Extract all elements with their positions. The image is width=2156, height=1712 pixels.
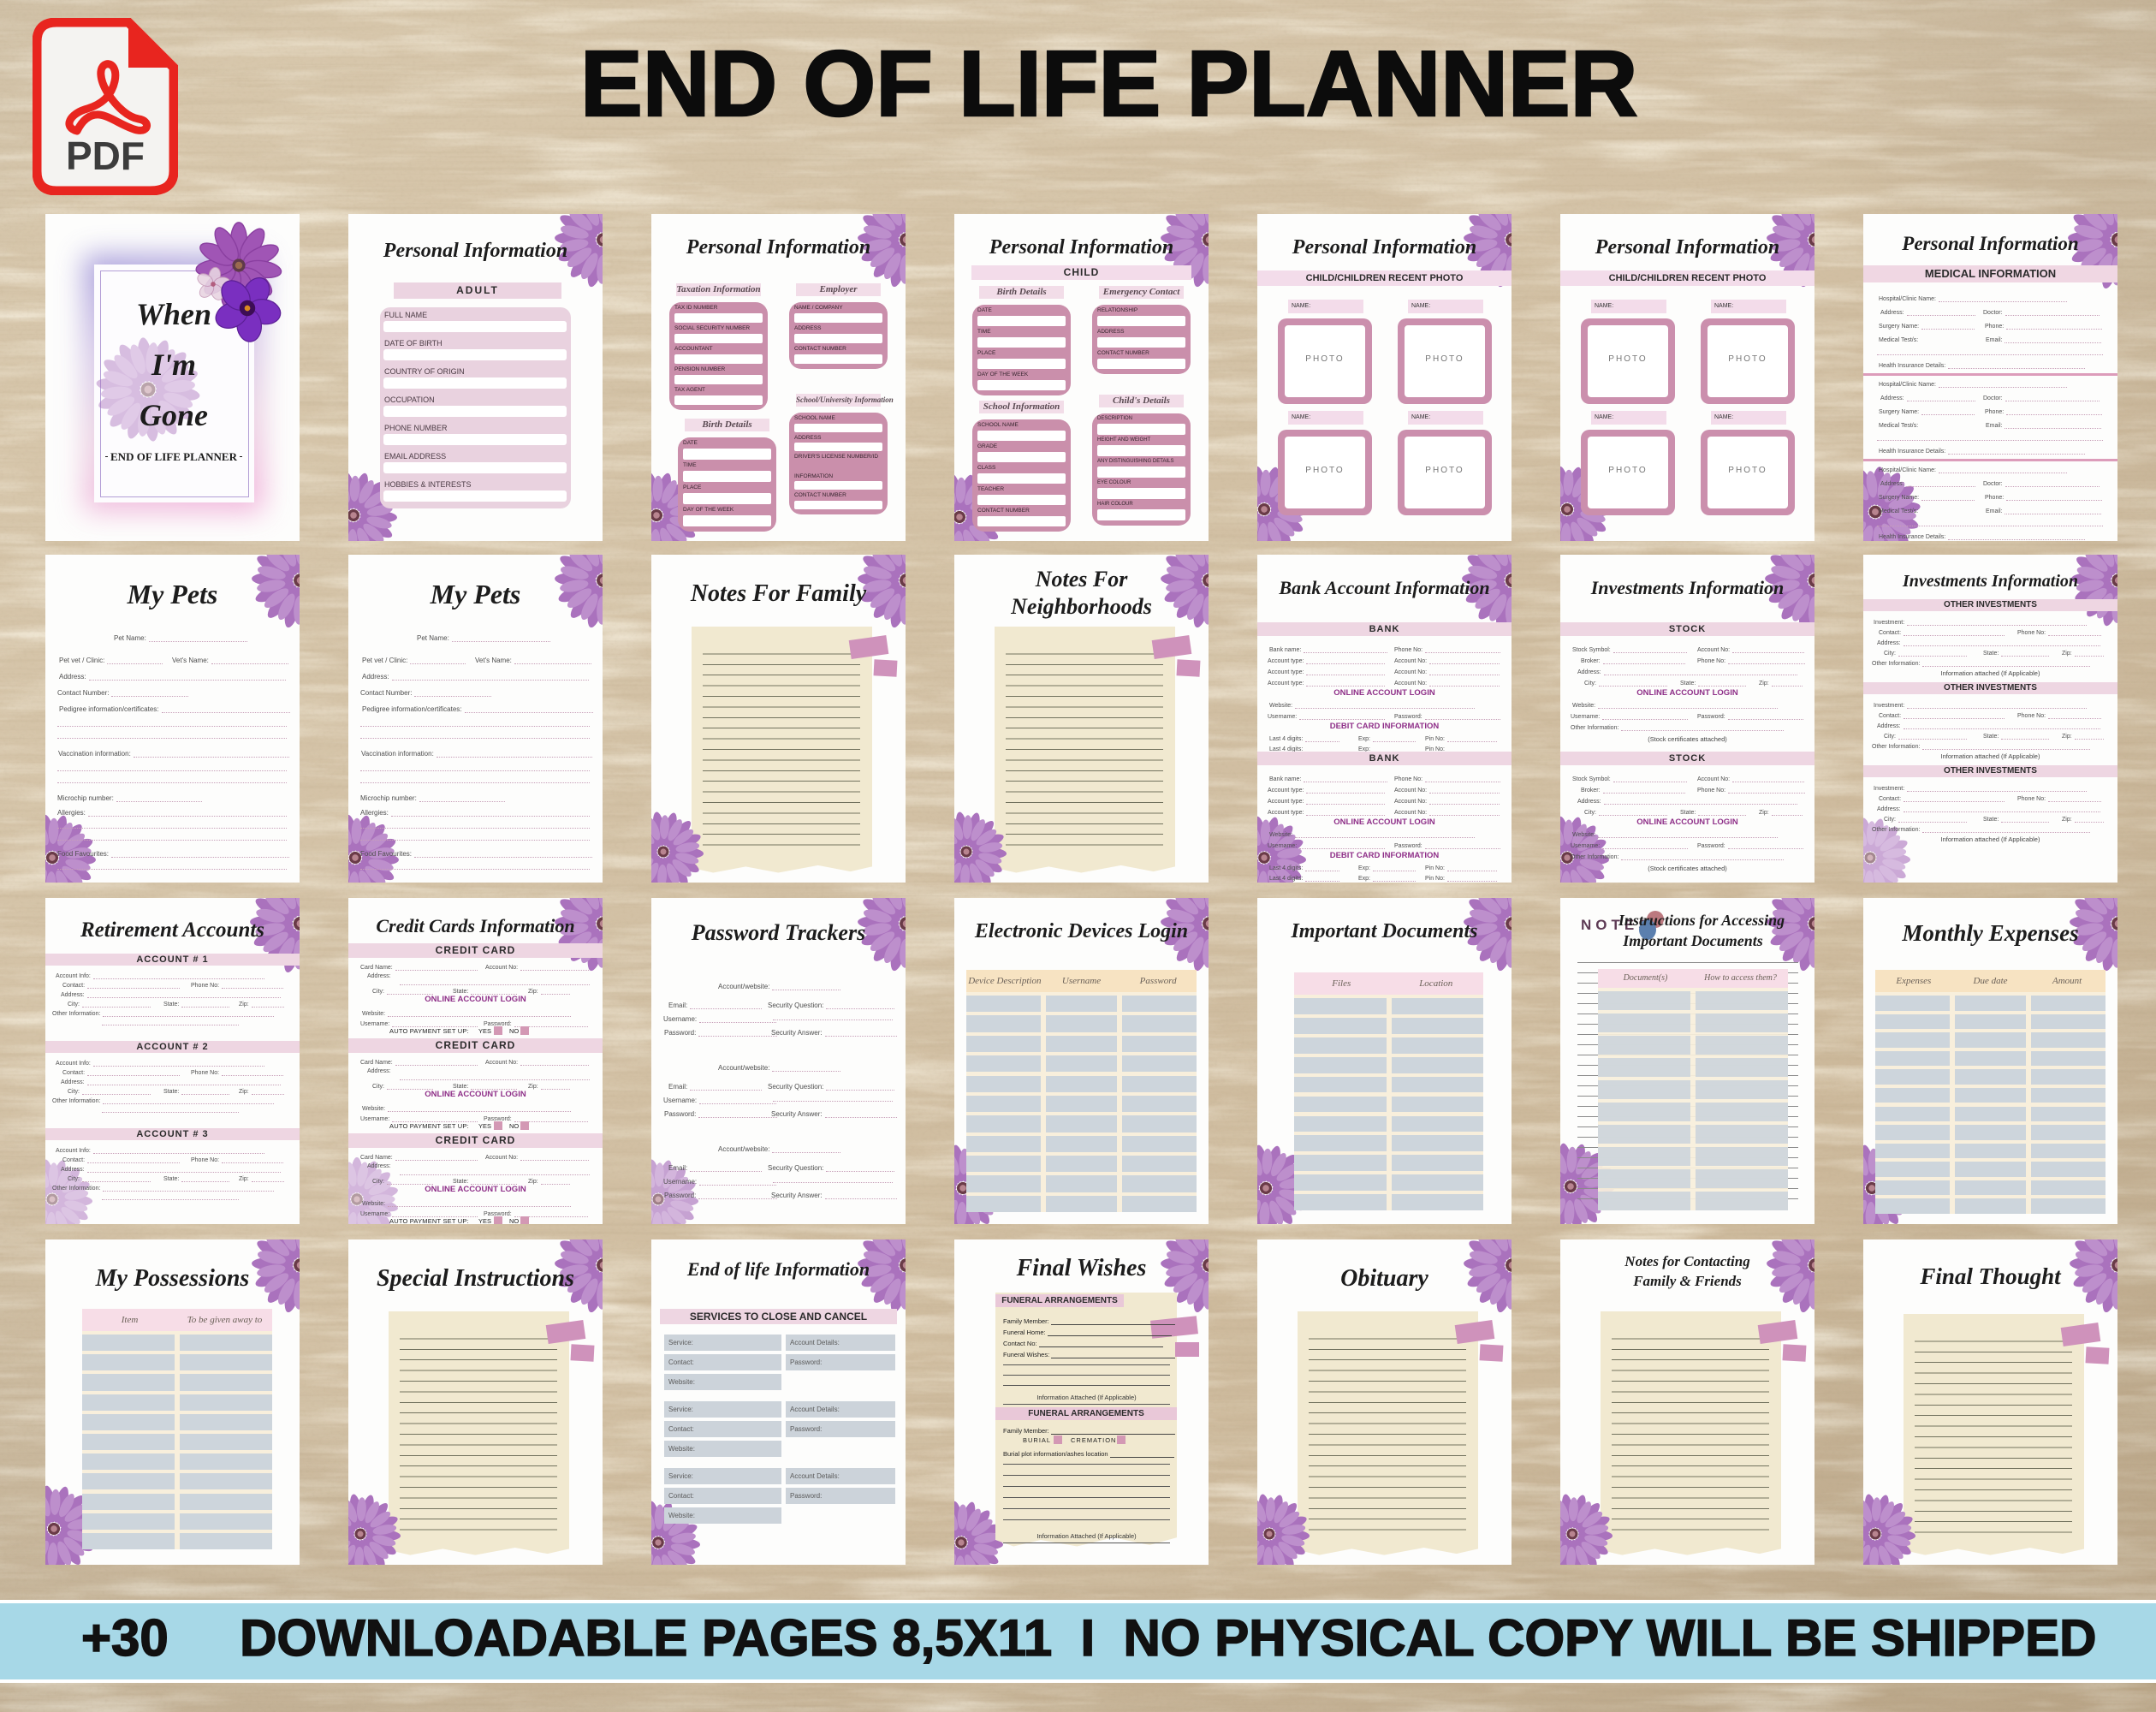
svg-text:PDF: PDF [66, 134, 145, 178]
